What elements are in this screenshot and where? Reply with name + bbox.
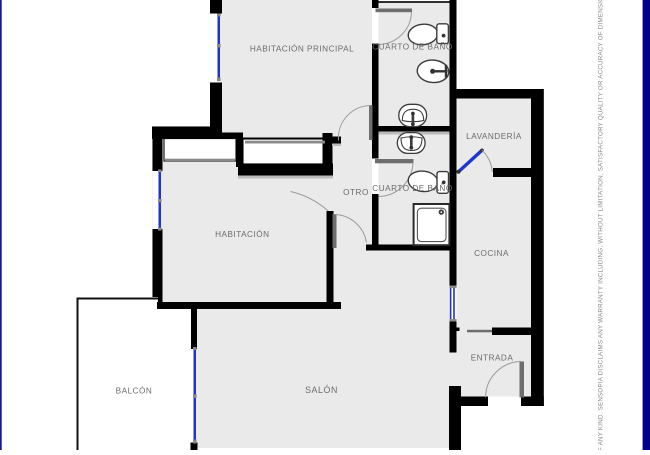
svg-text:SALÓN: SALÓN [305, 385, 338, 395]
svg-text:CUARTO DE BAÑO: CUARTO DE BAÑO [372, 42, 452, 52]
svg-text:OTRO: OTRO [343, 188, 369, 197]
svg-text:HABITACIÓN PRINCIPAL: HABITACIÓN PRINCIPAL [250, 43, 354, 53]
svg-text:LAVANDERÍA: LAVANDERÍA [466, 131, 522, 141]
svg-text:COCINA: COCINA [474, 249, 509, 258]
svg-text:F ANY KIND. SENSOPIA DISCLAIMS: F ANY KIND. SENSOPIA DISCLAIMS ANY WARRA… [598, 0, 605, 450]
svg-text:ENTRADA: ENTRADA [471, 353, 514, 362]
svg-text:BALCÓN: BALCÓN [116, 386, 153, 396]
svg-text:CUARTO DE BAÑO: CUARTO DE BAÑO [372, 183, 452, 193]
svg-text:HABITACIÓN: HABITACIÓN [215, 229, 269, 239]
